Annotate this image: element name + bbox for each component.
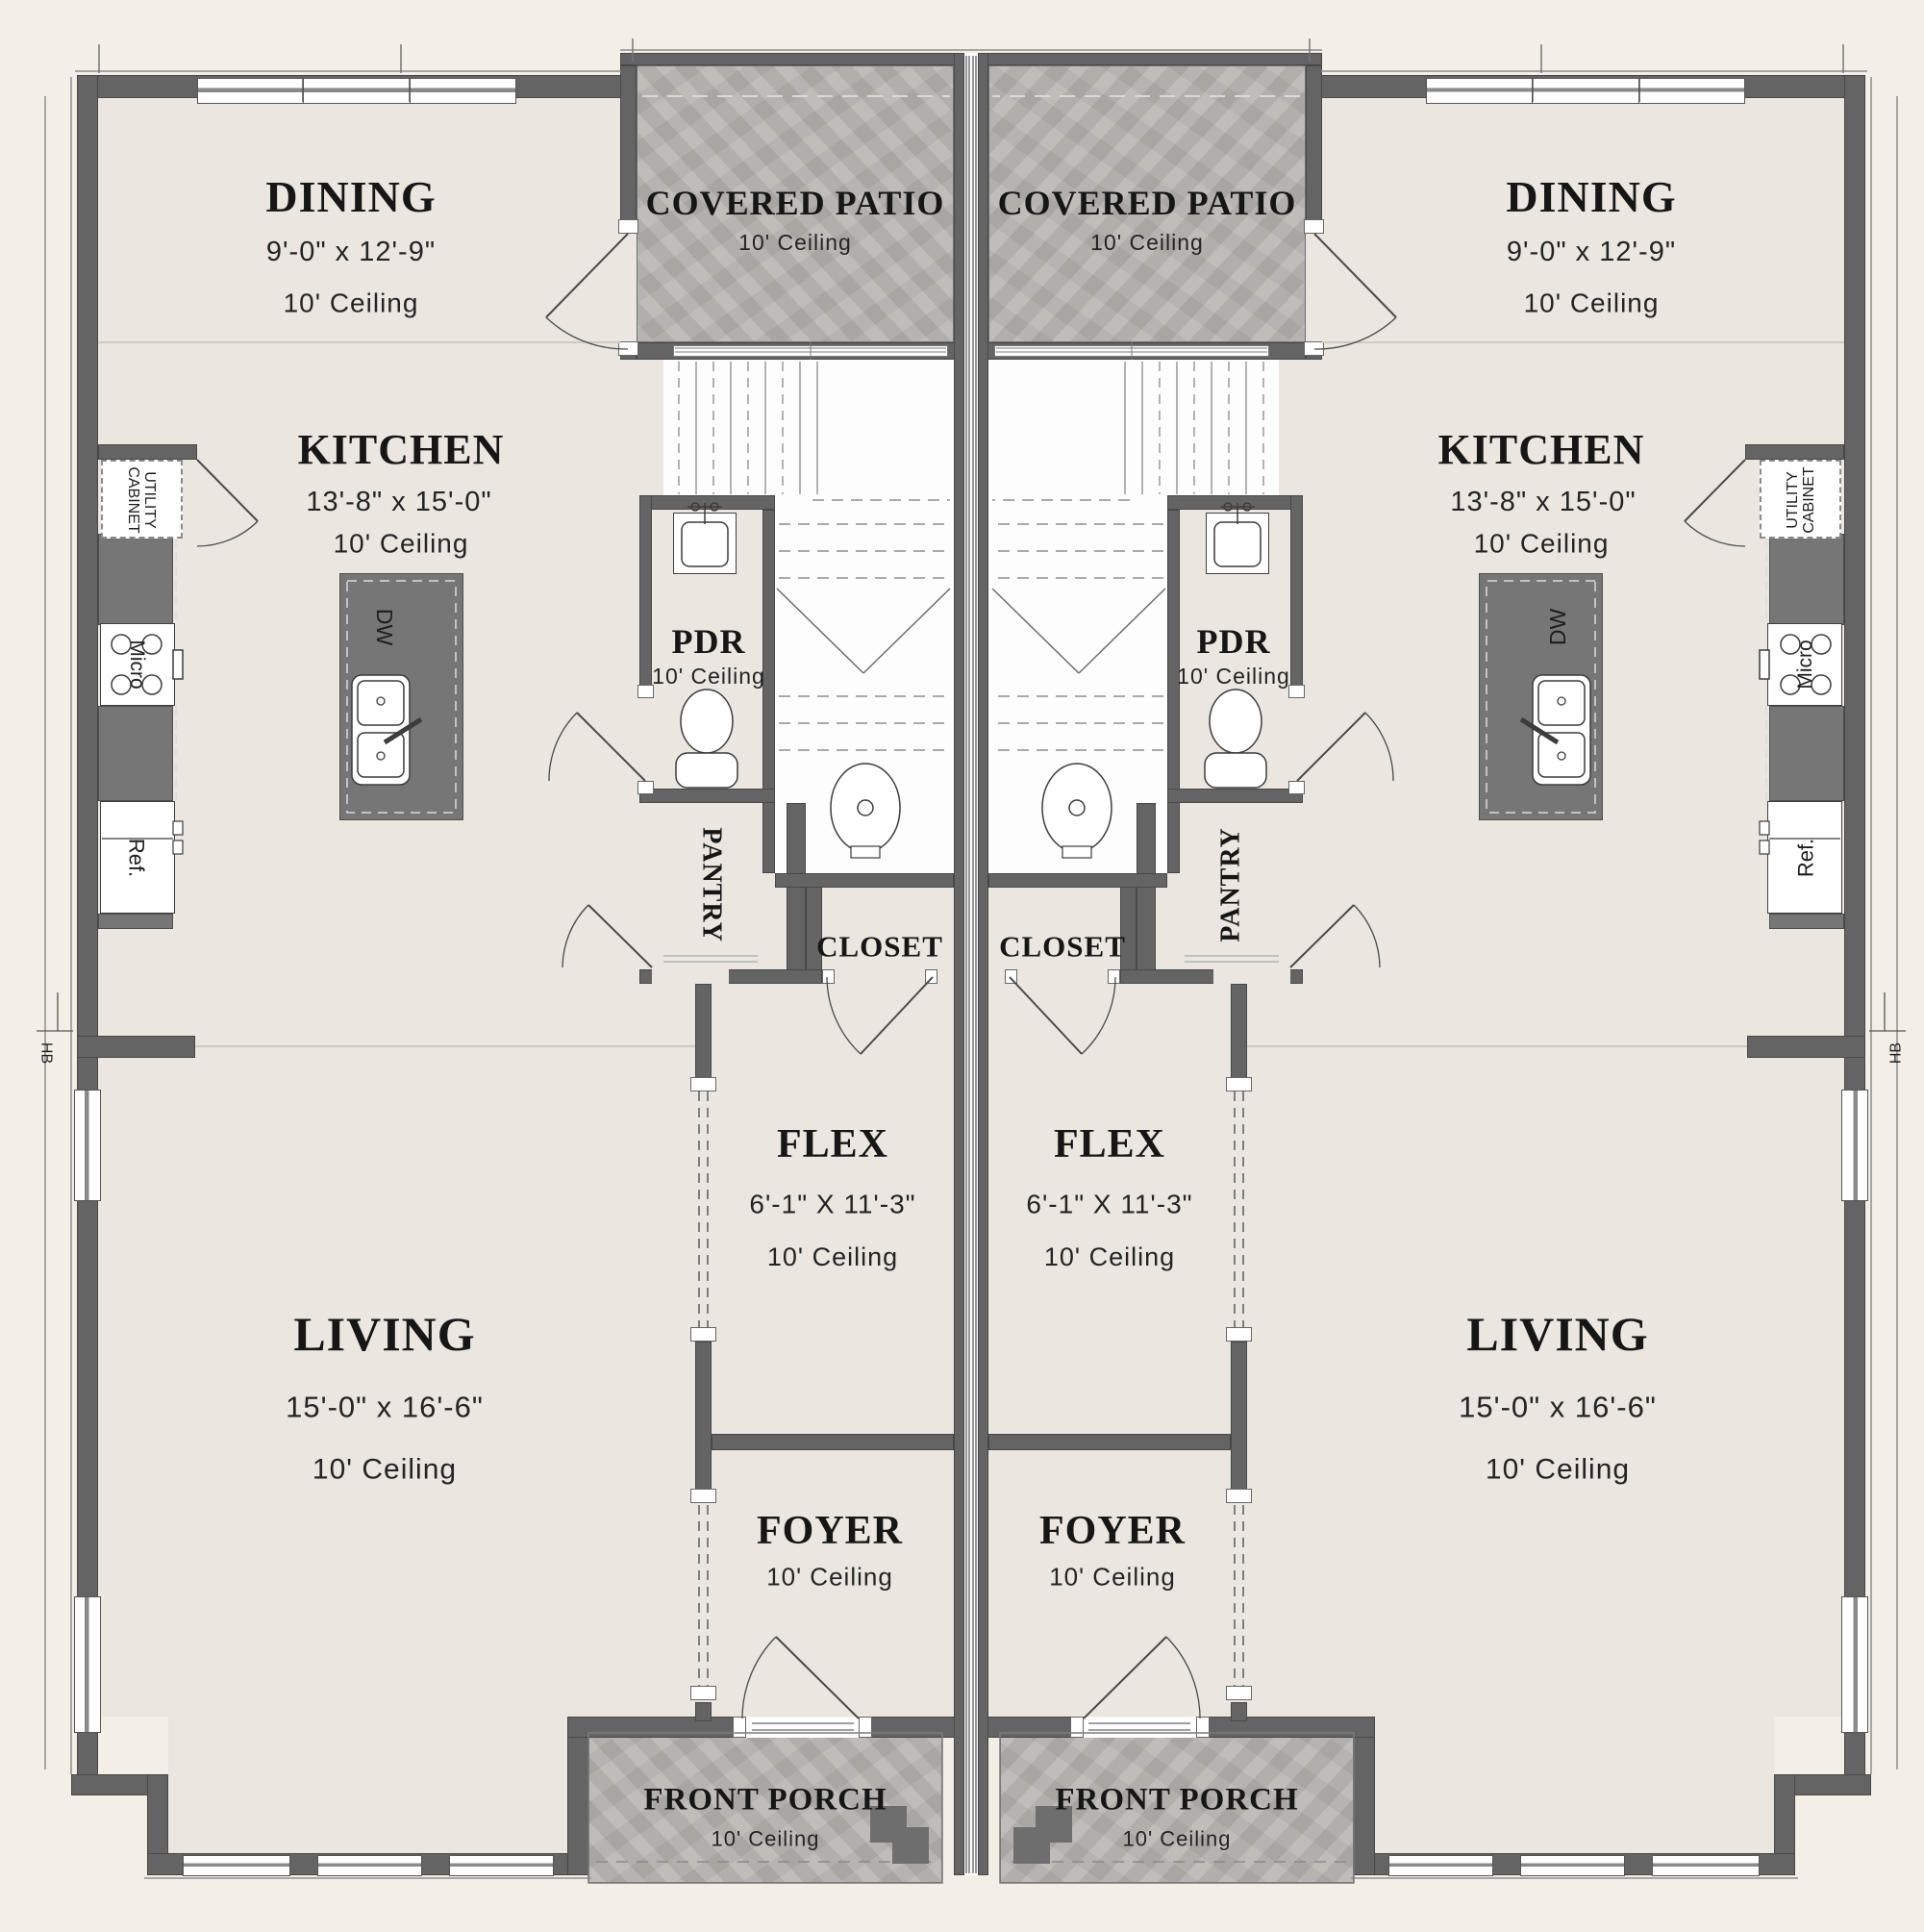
window — [1388, 1855, 1493, 1876]
stair-zone — [988, 360, 1279, 495]
room-label-dining: DINING — [1506, 174, 1676, 220]
room-ceiling-foyer: 10' Ceiling — [766, 1564, 893, 1590]
room-label-pdr: PDR — [1197, 624, 1271, 661]
window — [1652, 1855, 1760, 1876]
front-door-opening — [1084, 1717, 1196, 1738]
room-ceiling-covered-patio: 10' Ceiling — [738, 231, 852, 254]
porch-side-wall — [567, 1717, 588, 1875]
stair-zone — [663, 360, 954, 495]
hall-wall-stub — [695, 984, 712, 1080]
kitchen-counter — [98, 914, 173, 929]
door-jamb — [859, 1717, 872, 1738]
closet-door-opening — [1017, 969, 1120, 984]
kitchen-counter — [1769, 534, 1844, 625]
patio-top-wall — [620, 53, 971, 65]
door-jamb — [925, 969, 937, 984]
party-wall — [978, 53, 988, 1875]
pdr-wall — [639, 495, 775, 510]
room-dims-kitchen: 13'-8" x 15'-0" — [306, 488, 491, 516]
floor-plan: DINING 9'-0" x 12'-9" 10' Ceiling KITCHE… — [0, 0, 1924, 1932]
cased-opening-jamb — [1226, 1327, 1252, 1342]
pantry-door-opening — [652, 969, 729, 984]
room-label-kitchen: KITCHEN — [1438, 428, 1645, 472]
door-jamb — [618, 219, 638, 234]
room-ceiling-front-porch: 10' Ceiling — [711, 1827, 819, 1849]
room-dims-flex: 6'-1" X 11'-3" — [749, 1190, 915, 1217]
fixture-label-hose-bib: HB — [37, 1042, 54, 1064]
room-ceiling-living: 10' Ceiling — [1486, 1454, 1630, 1485]
window — [197, 78, 305, 104]
hall-wall — [1231, 1342, 1247, 1500]
room-ceiling-kitchen: 10' Ceiling — [334, 529, 469, 557]
room-label-front-porch: FRONT PORCH — [643, 1784, 887, 1818]
pdr-sink — [673, 513, 737, 574]
fixture-label-refrigerator: Ref. — [1794, 839, 1816, 877]
exterior-wall-left — [77, 75, 98, 1777]
room-ceiling-living: 10' Ceiling — [312, 1454, 457, 1485]
hall-wall-stub — [695, 1702, 712, 1721]
party-wall — [954, 53, 964, 1875]
door-jamb — [733, 1717, 746, 1738]
door-jamb — [1288, 685, 1305, 698]
room-ceiling-flex: 10' Ceiling — [1044, 1243, 1175, 1270]
pdr-wall — [1167, 495, 1303, 510]
unit-geometry — [971, 0, 1924, 1932]
window — [74, 1596, 101, 1733]
door-jamb — [1196, 1717, 1210, 1738]
pdr-wall — [1167, 789, 1303, 803]
notch-wall — [1774, 1774, 1795, 1859]
fixture-label-dishwasher: DW — [373, 609, 396, 645]
room-ceiling-pdr: 10' Ceiling — [652, 665, 765, 688]
room-dims-kitchen: 13'-8" x 15'-0" — [1450, 488, 1636, 516]
cased-opening-jamb — [1226, 1686, 1252, 1700]
room-dims-living: 15'-0" x 16'-6" — [1459, 1393, 1657, 1424]
room-label-flex: FLEX — [777, 1123, 888, 1166]
closet-wall — [806, 873, 822, 984]
flex-foyer-wall — [712, 1434, 954, 1450]
fixture-label-utility-cabinet: UTILITY CABINET — [1786, 454, 1818, 546]
room-dims-living: 15'-0" x 16'-6" — [286, 1393, 484, 1424]
patio-door-opening — [1306, 234, 1322, 341]
pdr-wall — [1167, 510, 1180, 873]
room-label-pantry: PANTRY — [1216, 827, 1244, 942]
notch-wall — [147, 1774, 168, 1859]
room-label-kitchen: KITCHEN — [298, 428, 505, 472]
window — [74, 1090, 101, 1201]
room-label-dining: DINING — [265, 174, 436, 220]
kitchen-counter — [98, 534, 173, 625]
room-dims-dining: 9'-0" x 12'-9" — [266, 238, 436, 266]
fixture-label-refrigerator: Ref. — [125, 839, 147, 877]
window — [1520, 1855, 1625, 1876]
unit-geometry — [0, 0, 971, 1932]
room-label-pdr: PDR — [672, 624, 746, 661]
fixture-label-microwave: Micro — [1795, 640, 1816, 689]
pdr-sink — [1206, 513, 1269, 574]
room-label-living: LIVING — [293, 1309, 475, 1360]
closet-door-opening — [822, 969, 925, 984]
pdr-door-opening — [639, 698, 652, 781]
room-label-closet: CLOSET — [999, 932, 1126, 964]
pdr-wall — [762, 510, 775, 873]
door-jamb — [1108, 969, 1120, 984]
pdr-door-opening — [1290, 698, 1303, 781]
window — [1637, 78, 1745, 104]
cased-opening-jamb — [1226, 1489, 1252, 1503]
door-jamb — [1005, 969, 1017, 984]
door-jamb — [637, 781, 654, 794]
room-label-pantry: PANTRY — [697, 827, 725, 942]
flex-foyer-wall — [988, 1434, 1231, 1450]
cased-opening-jamb — [690, 1077, 716, 1091]
room-dims-flex: 6'-1" X 11'-3" — [1026, 1190, 1192, 1217]
kitchen-counter — [1769, 706, 1844, 801]
mech-bottom-wall — [775, 873, 954, 888]
sliding-door — [994, 345, 1269, 357]
hall-wall-stub — [1231, 1702, 1247, 1721]
cased-opening-jamb — [690, 1489, 716, 1503]
kitchen-island — [339, 573, 463, 820]
room-ceiling-covered-patio: 10' Ceiling — [1090, 231, 1204, 254]
party-wall-core — [964, 53, 971, 1875]
room-label-front-porch: FRONT PORCH — [1055, 1784, 1298, 1818]
room-dims-dining: 9'-0" x 12'-9" — [1507, 238, 1676, 266]
room-label-foyer: FOYER — [1039, 1510, 1186, 1552]
pantry-wall — [787, 803, 806, 984]
hall-wall — [695, 1342, 712, 1500]
kitchen-counter — [1769, 914, 1844, 929]
sliding-door — [673, 345, 948, 357]
window — [1531, 78, 1639, 104]
room-ceiling-dining: 10' Ceiling — [1524, 289, 1660, 316]
window — [183, 1855, 290, 1876]
room-label-covered-patio: COVERED PATIO — [998, 186, 1297, 222]
door-jamb — [822, 969, 835, 984]
pdr-wall — [639, 789, 775, 803]
door-jamb — [1070, 1717, 1084, 1738]
cased-opening-jamb — [690, 1686, 716, 1700]
room-label-living: LIVING — [1466, 1309, 1648, 1360]
room-ceiling-flex: 10' Ceiling — [767, 1243, 898, 1270]
mech-bottom-wall — [988, 873, 1167, 888]
fixture-label-dishwasher: DW — [1546, 609, 1569, 645]
fixture-label-hose-bib: HB — [1889, 1042, 1906, 1064]
window — [410, 78, 516, 104]
patio-door-opening — [620, 234, 637, 341]
window — [1426, 78, 1533, 104]
kitchen-living-stub — [1747, 1036, 1865, 1058]
room-ceiling-front-porch: 10' Ceiling — [1122, 1827, 1231, 1849]
interior-floor-notch — [1375, 1717, 1774, 1853]
porch-side-wall — [1354, 1717, 1375, 1875]
cased-opening-jamb — [1226, 1077, 1252, 1091]
door-jamb — [1304, 341, 1324, 356]
window — [449, 1855, 554, 1876]
window — [1841, 1090, 1868, 1201]
exterior-wall-left — [1844, 75, 1865, 1777]
party-wall-core — [971, 53, 978, 1875]
room-label-closet: CLOSET — [816, 932, 943, 964]
kitchen-counter — [98, 706, 173, 801]
door-jamb — [1304, 219, 1324, 234]
door-jamb — [1288, 781, 1305, 794]
fixture-label-utility-cabinet: UTILITY CABINET — [124, 454, 157, 546]
front-door-opening — [746, 1717, 859, 1738]
pantry-door-opening — [1213, 969, 1290, 984]
kitchen-living-stub — [77, 1036, 195, 1058]
room-ceiling-pdr: 10' Ceiling — [1177, 665, 1290, 688]
pantry-wall — [1137, 803, 1156, 984]
room-label-foyer: FOYER — [757, 1510, 903, 1552]
cased-opening-jamb — [690, 1327, 716, 1342]
kitchen-island — [1479, 573, 1603, 820]
hall-wall-stub — [1231, 984, 1247, 1080]
room-label-covered-patio: COVERED PATIO — [646, 186, 945, 222]
closet-wall — [1120, 873, 1137, 984]
room-ceiling-foyer: 10' Ceiling — [1049, 1564, 1176, 1590]
room-ceiling-kitchen: 10' Ceiling — [1474, 529, 1610, 557]
window — [1841, 1596, 1868, 1733]
fixture-label-microwave: Micro — [126, 640, 147, 689]
window — [317, 1855, 422, 1876]
interior-floor-notch — [168, 1717, 567, 1853]
room-label-flex: FLEX — [1054, 1123, 1165, 1166]
patio-top-wall — [971, 53, 1322, 65]
window — [303, 78, 412, 104]
door-jamb — [618, 341, 638, 356]
room-ceiling-dining: 10' Ceiling — [284, 289, 419, 316]
